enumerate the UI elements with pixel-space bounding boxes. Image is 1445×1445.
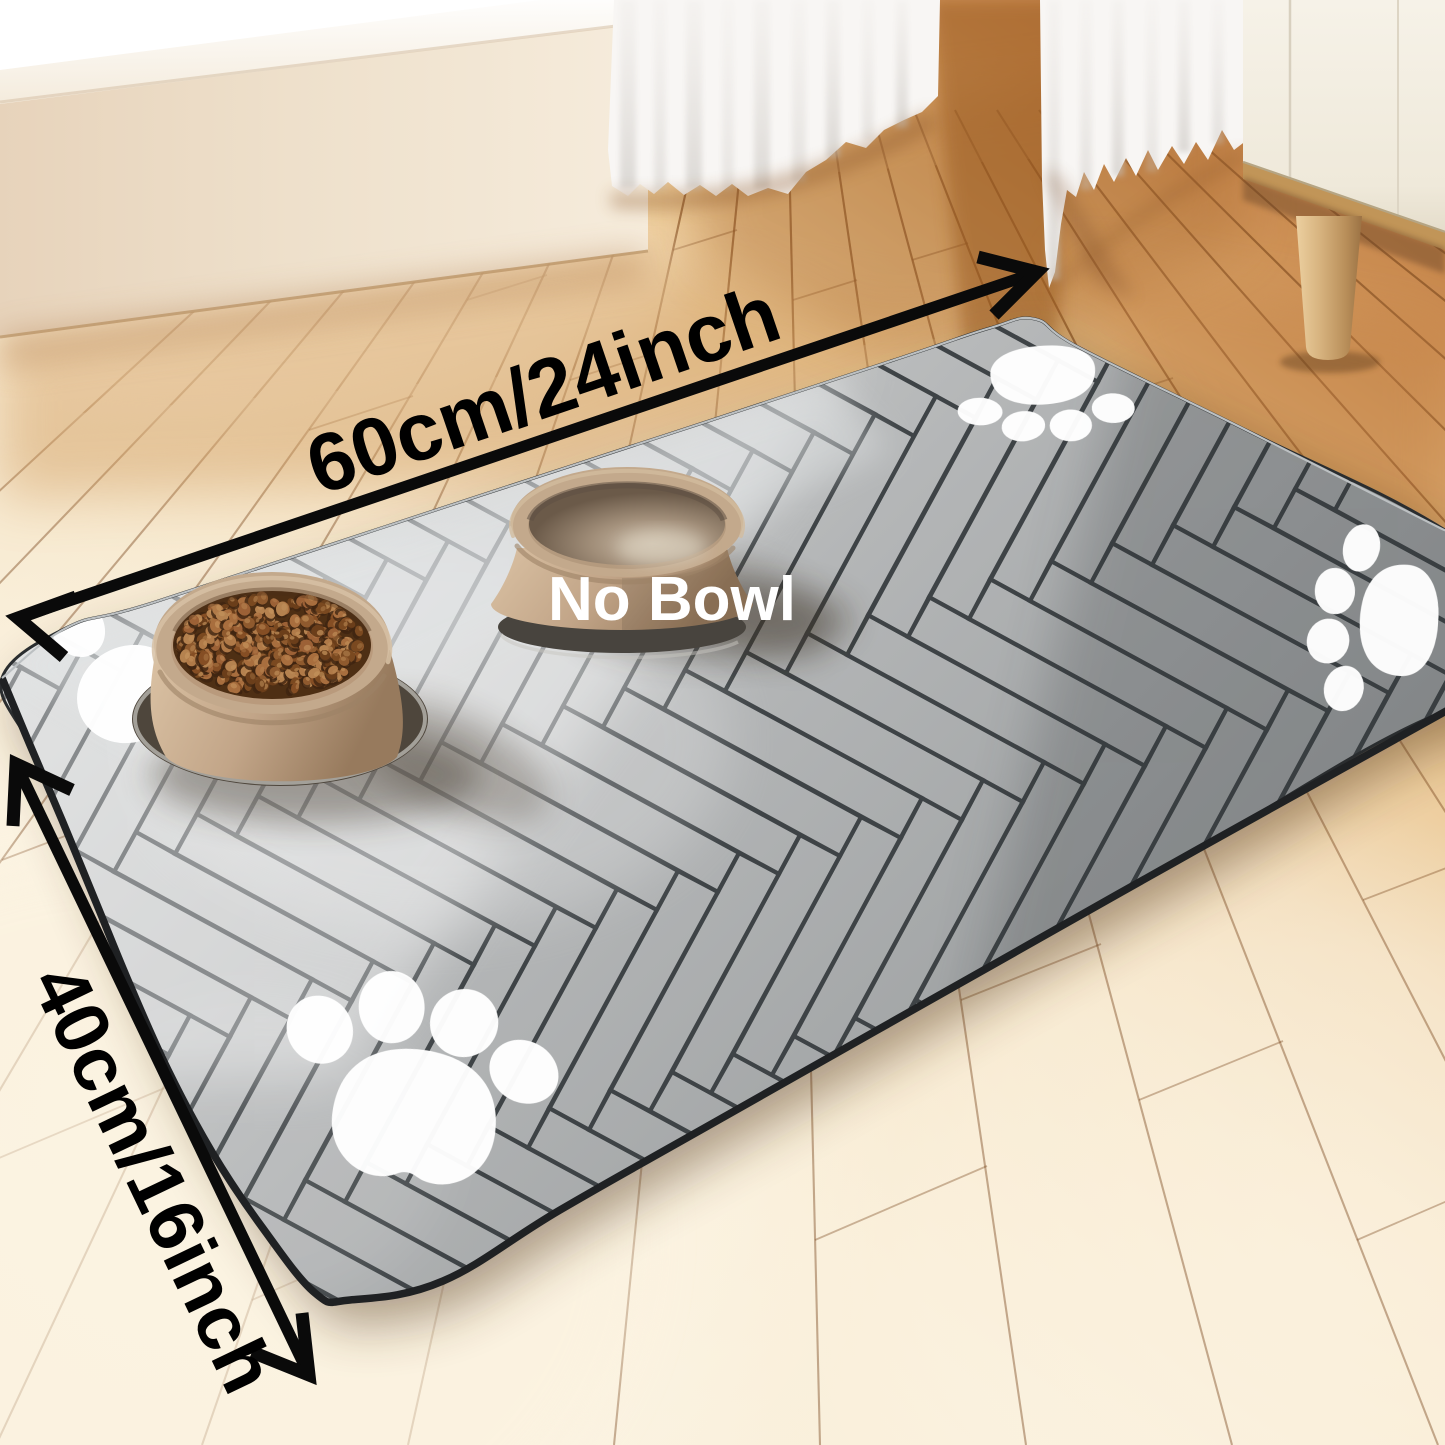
svg-text:No Bowl: No Bowl bbox=[548, 565, 796, 634]
